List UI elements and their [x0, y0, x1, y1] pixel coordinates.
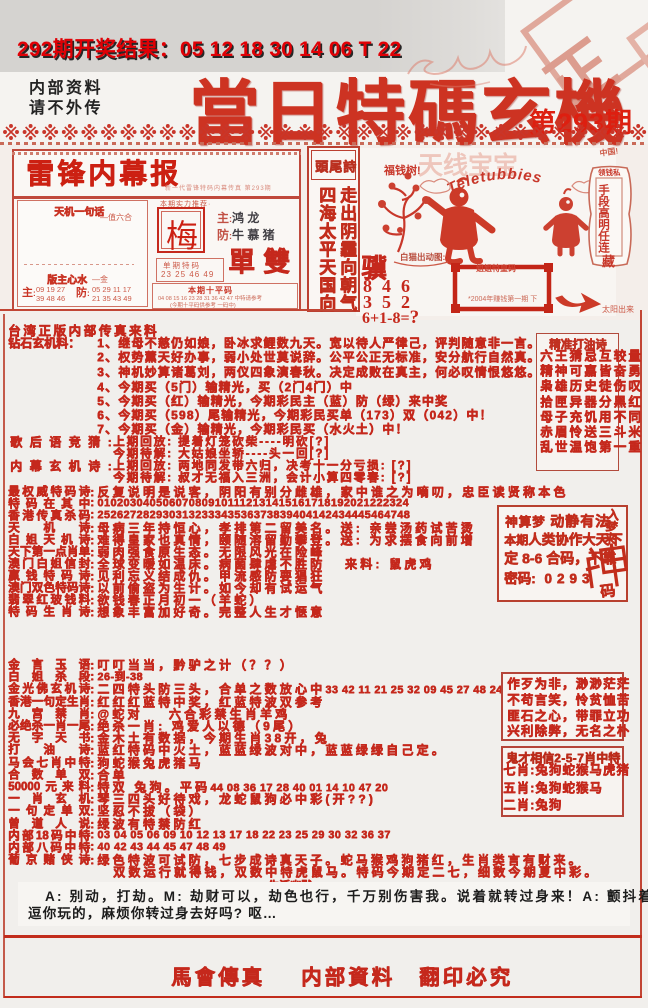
- svg-text:手段高明任连: 手段高明任连: [597, 183, 611, 254]
- svg-text:领钱私: 领钱私: [598, 167, 621, 177]
- svg-text:藏: 藏: [602, 254, 615, 269]
- svg-text:太阳出来: 太阳出来: [602, 304, 634, 314]
- svg-text:白猫出动图:: 白猫出动图:: [400, 252, 446, 262]
- svg-text:*2004年赚钱第一期 下: *2004年赚钱第一期 下: [468, 294, 537, 303]
- svg-text:福钱树!: 福钱树!: [383, 163, 421, 177]
- svg-text:姐姐特皇码: 姐姐特皇码: [476, 263, 516, 273]
- svg-text:中国!: 中国!: [599, 145, 619, 158]
